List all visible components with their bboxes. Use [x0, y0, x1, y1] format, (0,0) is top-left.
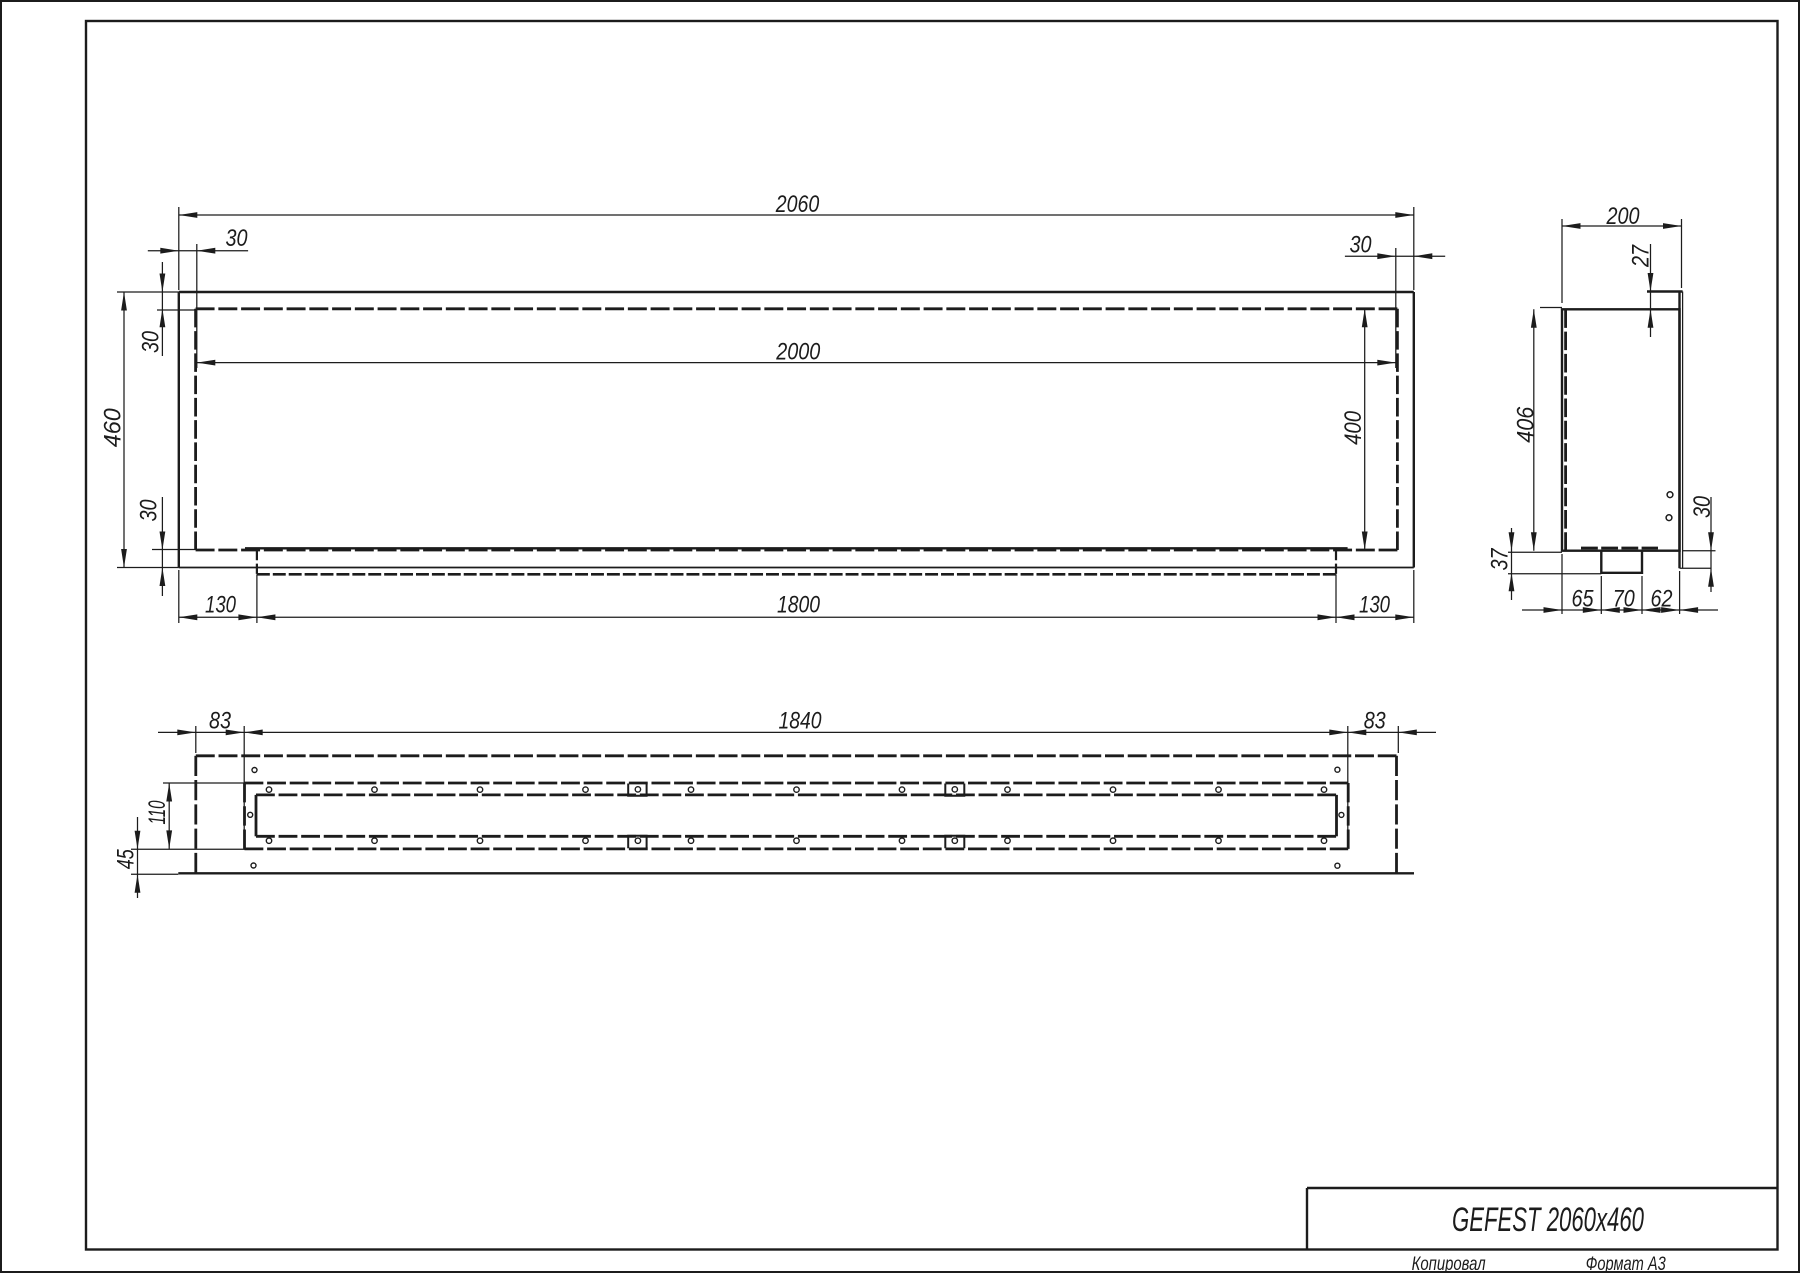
svg-text:30: 30 — [136, 499, 163, 522]
svg-text:Формат А3: Формат А3 — [1586, 1253, 1666, 1273]
svg-text:130: 130 — [205, 592, 237, 619]
svg-text:110: 110 — [144, 800, 171, 824]
svg-text:1840: 1840 — [779, 708, 823, 735]
svg-text:83: 83 — [1364, 708, 1387, 735]
svg-text:GEFEST 2060x460: GEFEST 2060x460 — [1452, 1201, 1644, 1239]
svg-text:83: 83 — [209, 708, 232, 735]
svg-text:37: 37 — [1487, 547, 1514, 570]
svg-text:2060: 2060 — [775, 191, 820, 218]
svg-text:460: 460 — [100, 408, 127, 448]
svg-text:30: 30 — [1350, 232, 1373, 259]
svg-text:45: 45 — [113, 849, 140, 869]
svg-text:70: 70 — [1613, 586, 1636, 613]
svg-text:406: 406 — [1513, 406, 1540, 443]
svg-text:30: 30 — [138, 330, 165, 353]
svg-text:1800: 1800 — [777, 592, 821, 619]
svg-text:200: 200 — [1606, 203, 1640, 230]
svg-text:62: 62 — [1651, 586, 1673, 613]
svg-text:Копировал: Копировал — [1412, 1253, 1486, 1273]
svg-text:65: 65 — [1572, 586, 1595, 613]
svg-text:30: 30 — [226, 225, 249, 252]
svg-text:400: 400 — [1340, 410, 1367, 445]
svg-text:2000: 2000 — [775, 339, 820, 366]
svg-text:130: 130 — [1359, 592, 1391, 619]
svg-text:27: 27 — [1628, 244, 1655, 268]
svg-text:30: 30 — [1689, 495, 1716, 518]
